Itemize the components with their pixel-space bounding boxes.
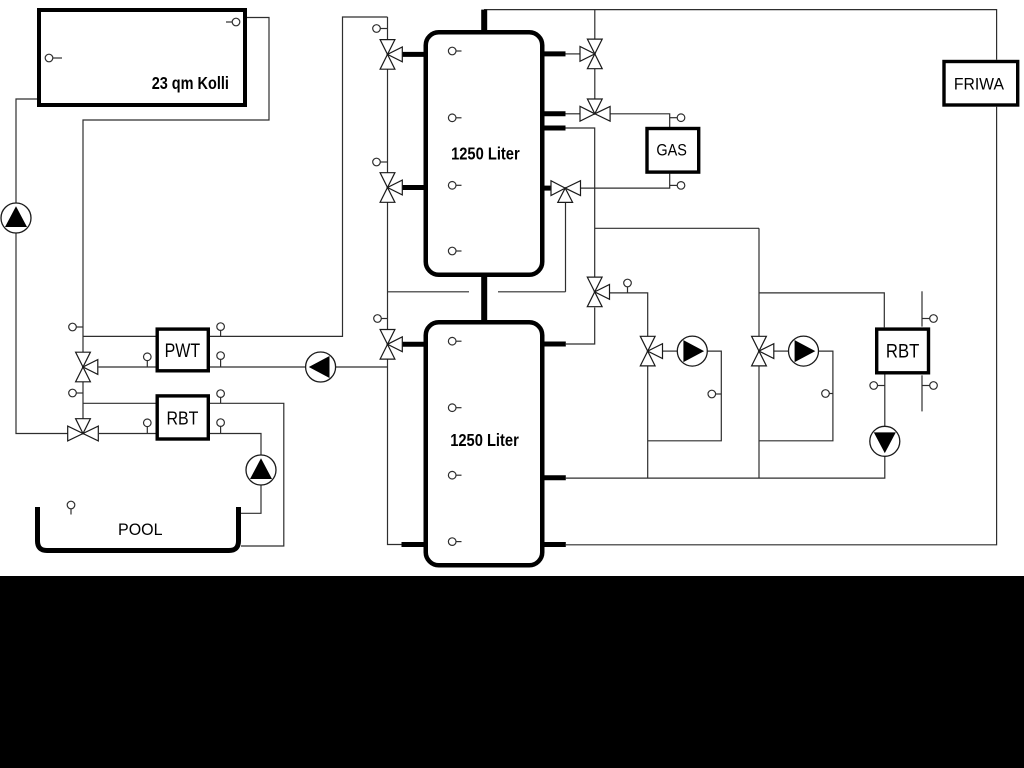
svg-text:GAS: GAS xyxy=(656,142,687,160)
svg-text:RBT: RBT xyxy=(886,341,920,362)
svg-text:1250 Liter: 1250 Liter xyxy=(451,144,520,164)
svg-text:1250 Liter: 1250 Liter xyxy=(450,430,519,450)
svg-text:RBT: RBT xyxy=(166,408,198,428)
svg-text:POOL: POOL xyxy=(118,520,163,539)
svg-text:FRIWA: FRIWA xyxy=(954,75,1004,93)
svg-text:PWT: PWT xyxy=(165,341,201,362)
svg-text:23 qm Kolli: 23 qm Kolli xyxy=(152,73,229,93)
